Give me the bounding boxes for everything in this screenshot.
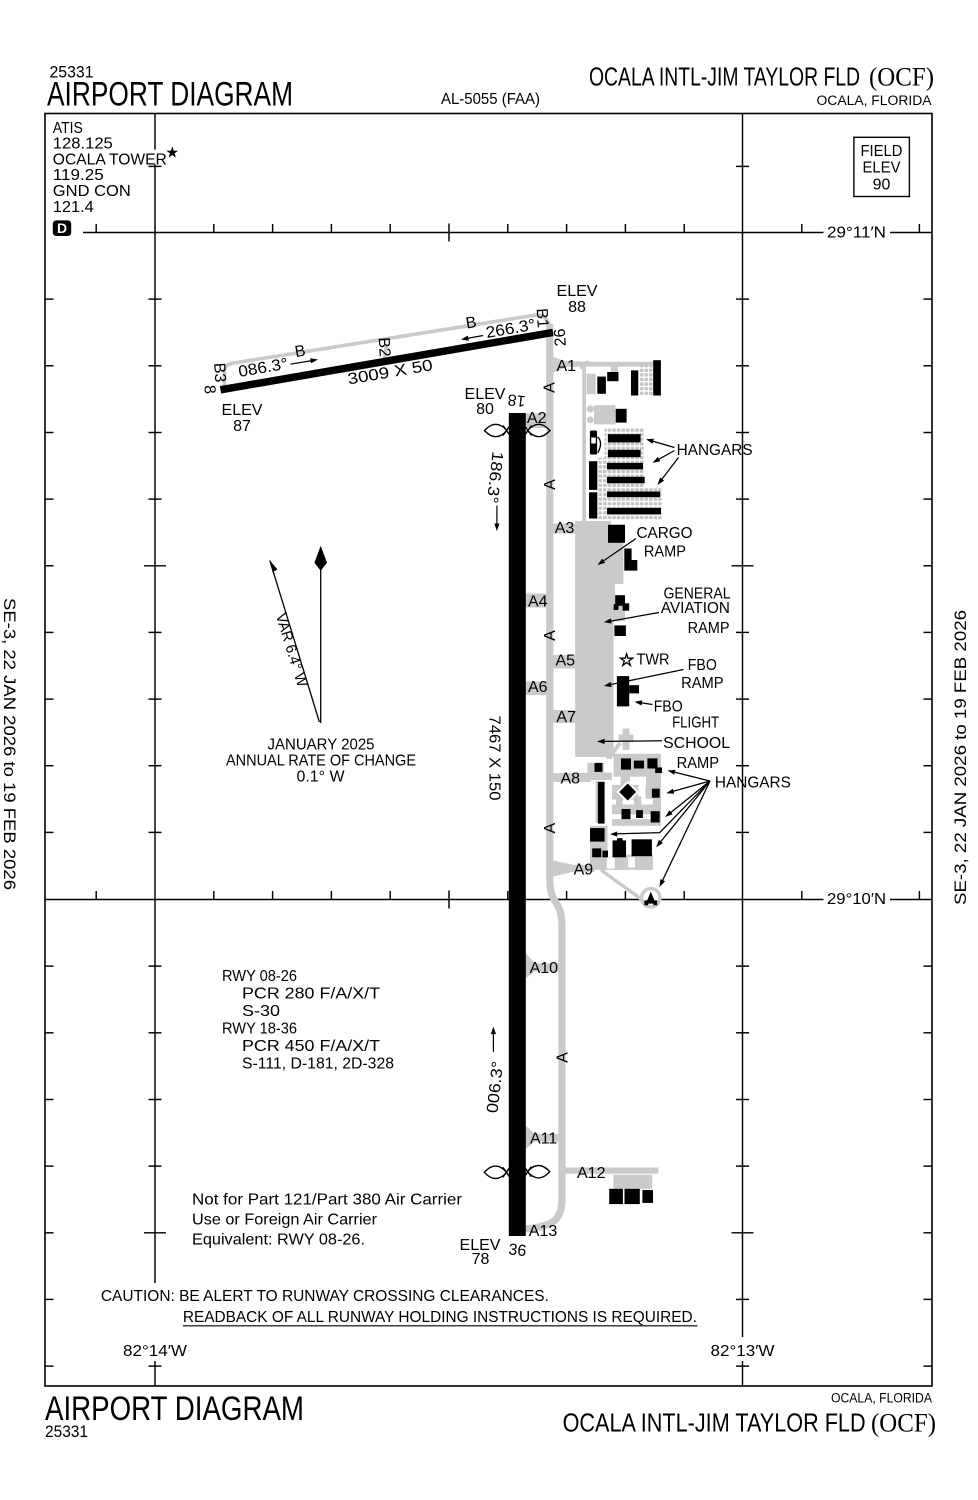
svg-text:A5: A5 <box>556 653 576 670</box>
svg-text:A9: A9 <box>574 861 594 878</box>
svg-text:ELEV: ELEV <box>863 160 901 177</box>
svg-text:7467 X 150: 7467 X 150 <box>486 716 503 801</box>
svg-text:PCR 450 F/A/X/T: PCR 450 F/A/X/T <box>242 1038 380 1055</box>
svg-text:A12: A12 <box>577 1165 606 1182</box>
svg-text:A: A <box>542 630 559 641</box>
svg-text:B2: B2 <box>375 337 393 358</box>
svg-text:(OCF): (OCF) <box>871 1409 936 1438</box>
svg-text:ANNUAL RATE OF CHANGE: ANNUAL RATE OF CHANGE <box>226 753 416 770</box>
svg-text:B1: B1 <box>533 308 551 329</box>
svg-text:25331: 25331 <box>45 1422 88 1441</box>
svg-text:A: A <box>555 1052 572 1063</box>
svg-text:119.25: 119.25 <box>53 167 104 184</box>
svg-text:RAMP: RAMP <box>681 675 724 692</box>
svg-text:A1: A1 <box>557 358 577 375</box>
svg-text:A10: A10 <box>530 960 559 977</box>
svg-text:A6: A6 <box>528 679 548 696</box>
svg-text:ELEV: ELEV <box>557 283 598 300</box>
svg-text:A: A <box>542 823 559 834</box>
svg-text:D: D <box>57 220 67 236</box>
svg-text:128.125: 128.125 <box>53 136 113 153</box>
svg-text:HANGARS: HANGARS <box>677 442 753 459</box>
svg-text:AIRPORT DIAGRAM: AIRPORT DIAGRAM <box>47 76 293 114</box>
svg-text:SE-3, 22 JAN 2026 to 19 FEB: SE-3, 22 JAN 2026 to 19 FEB 2026 <box>0 598 19 890</box>
svg-text:RWY 08-26: RWY 08-26 <box>222 968 297 985</box>
svg-text:82°13′W: 82°13′W <box>711 1343 776 1360</box>
svg-text:RAMP: RAMP <box>677 755 720 772</box>
svg-text:A11: A11 <box>530 1131 557 1148</box>
svg-text:PCR 280 F/A/X/T: PCR 280 F/A/X/T <box>242 986 380 1003</box>
svg-text:ATIS: ATIS <box>53 120 83 137</box>
svg-text:OCALA, FLORIDA: OCALA, FLORIDA <box>831 1391 932 1406</box>
svg-text:18: 18 <box>507 390 527 409</box>
svg-text:FIELD: FIELD <box>861 143 903 160</box>
svg-text:90: 90 <box>873 177 891 194</box>
svg-text:121.4: 121.4 <box>53 199 94 216</box>
svg-text:RWY 18-36: RWY 18-36 <box>222 1021 297 1038</box>
svg-text:87: 87 <box>233 418 251 435</box>
svg-text:TWR: TWR <box>637 652 670 669</box>
svg-text:JANUARY 2025: JANUARY 2025 <box>268 737 375 754</box>
svg-text:29°10′N: 29°10′N <box>827 891 886 908</box>
svg-text:S-111, D-181, 2D-328: S-111, D-181, 2D-328 <box>242 1056 394 1073</box>
svg-text:ELEV: ELEV <box>222 402 263 419</box>
svg-text:RAMP: RAMP <box>644 544 686 561</box>
svg-text:36: 36 <box>508 1241 528 1260</box>
svg-text:SE-3, 22 JAN 2026 to 19 FEB: SE-3, 22 JAN 2026 to 19 FEB 2026 <box>951 610 970 905</box>
svg-text:A4: A4 <box>528 594 548 611</box>
svg-text:82°14′W: 82°14′W <box>123 1343 188 1360</box>
svg-text:FBO: FBO <box>654 698 683 715</box>
svg-text:AVIATION: AVIATION <box>661 600 730 617</box>
svg-text:A3: A3 <box>555 520 575 537</box>
svg-text:CARGO: CARGO <box>637 525 693 542</box>
svg-text:RAMP: RAMP <box>688 620 730 637</box>
svg-text:HANGARS: HANGARS <box>715 775 791 792</box>
svg-text:80: 80 <box>476 401 494 418</box>
svg-text:FLIGHT: FLIGHT <box>672 715 719 732</box>
svg-text:26: 26 <box>552 328 570 347</box>
svg-text:0.1° W: 0.1° W <box>297 769 346 786</box>
svg-text:A2: A2 <box>527 410 547 427</box>
svg-text:29°11′N: 29°11′N <box>827 225 886 242</box>
svg-text:A7: A7 <box>556 709 576 726</box>
svg-text:Use or Foreign Air Carrier: Use or Foreign Air Carrier <box>192 1212 378 1229</box>
svg-text:SCHOOL: SCHOOL <box>663 735 730 752</box>
svg-text:A13: A13 <box>529 1223 558 1240</box>
svg-text:Not for Part 121/Part 380 Air: Not for Part 121/Part 380 Air Carrier <box>192 1192 463 1209</box>
svg-text:B3: B3 <box>210 362 228 383</box>
svg-text:CAUTION: BE ALERT TO RUNWAY CR: CAUTION: BE ALERT TO RUNWAY CROSSING CLE… <box>101 1288 549 1305</box>
svg-text:S-30: S-30 <box>242 1003 280 1020</box>
svg-text:FBO: FBO <box>688 657 717 674</box>
svg-text:88: 88 <box>568 299 586 316</box>
svg-text:8: 8 <box>200 385 218 395</box>
svg-text:OCALA TOWER: OCALA TOWER <box>53 151 167 168</box>
svg-text:A: A <box>542 382 559 393</box>
svg-text:A8: A8 <box>561 770 581 787</box>
svg-text:AL-5055 (FAA): AL-5055 (FAA) <box>441 91 540 108</box>
svg-text:OCALA INTL-JIM TAYLOR FLD: OCALA INTL-JIM TAYLOR FLD <box>589 62 860 92</box>
svg-text:78: 78 <box>472 1251 490 1268</box>
svg-text:OCALA INTL-JIM TAYLOR FLD: OCALA INTL-JIM TAYLOR FLD <box>563 1408 866 1438</box>
svg-text:(OCF): (OCF) <box>869 63 934 92</box>
svg-text:OCALA, FLORIDA: OCALA, FLORIDA <box>817 93 932 108</box>
svg-text:READBACK OF ALL RUNWAY HOLDING: READBACK OF ALL RUNWAY HOLDING INSTRUCTI… <box>183 1309 697 1326</box>
svg-text:GND CON: GND CON <box>53 183 131 200</box>
svg-text:A: A <box>542 479 559 490</box>
svg-text:Equivalent: RWY 08-26.: Equivalent: RWY 08-26. <box>192 1232 365 1249</box>
